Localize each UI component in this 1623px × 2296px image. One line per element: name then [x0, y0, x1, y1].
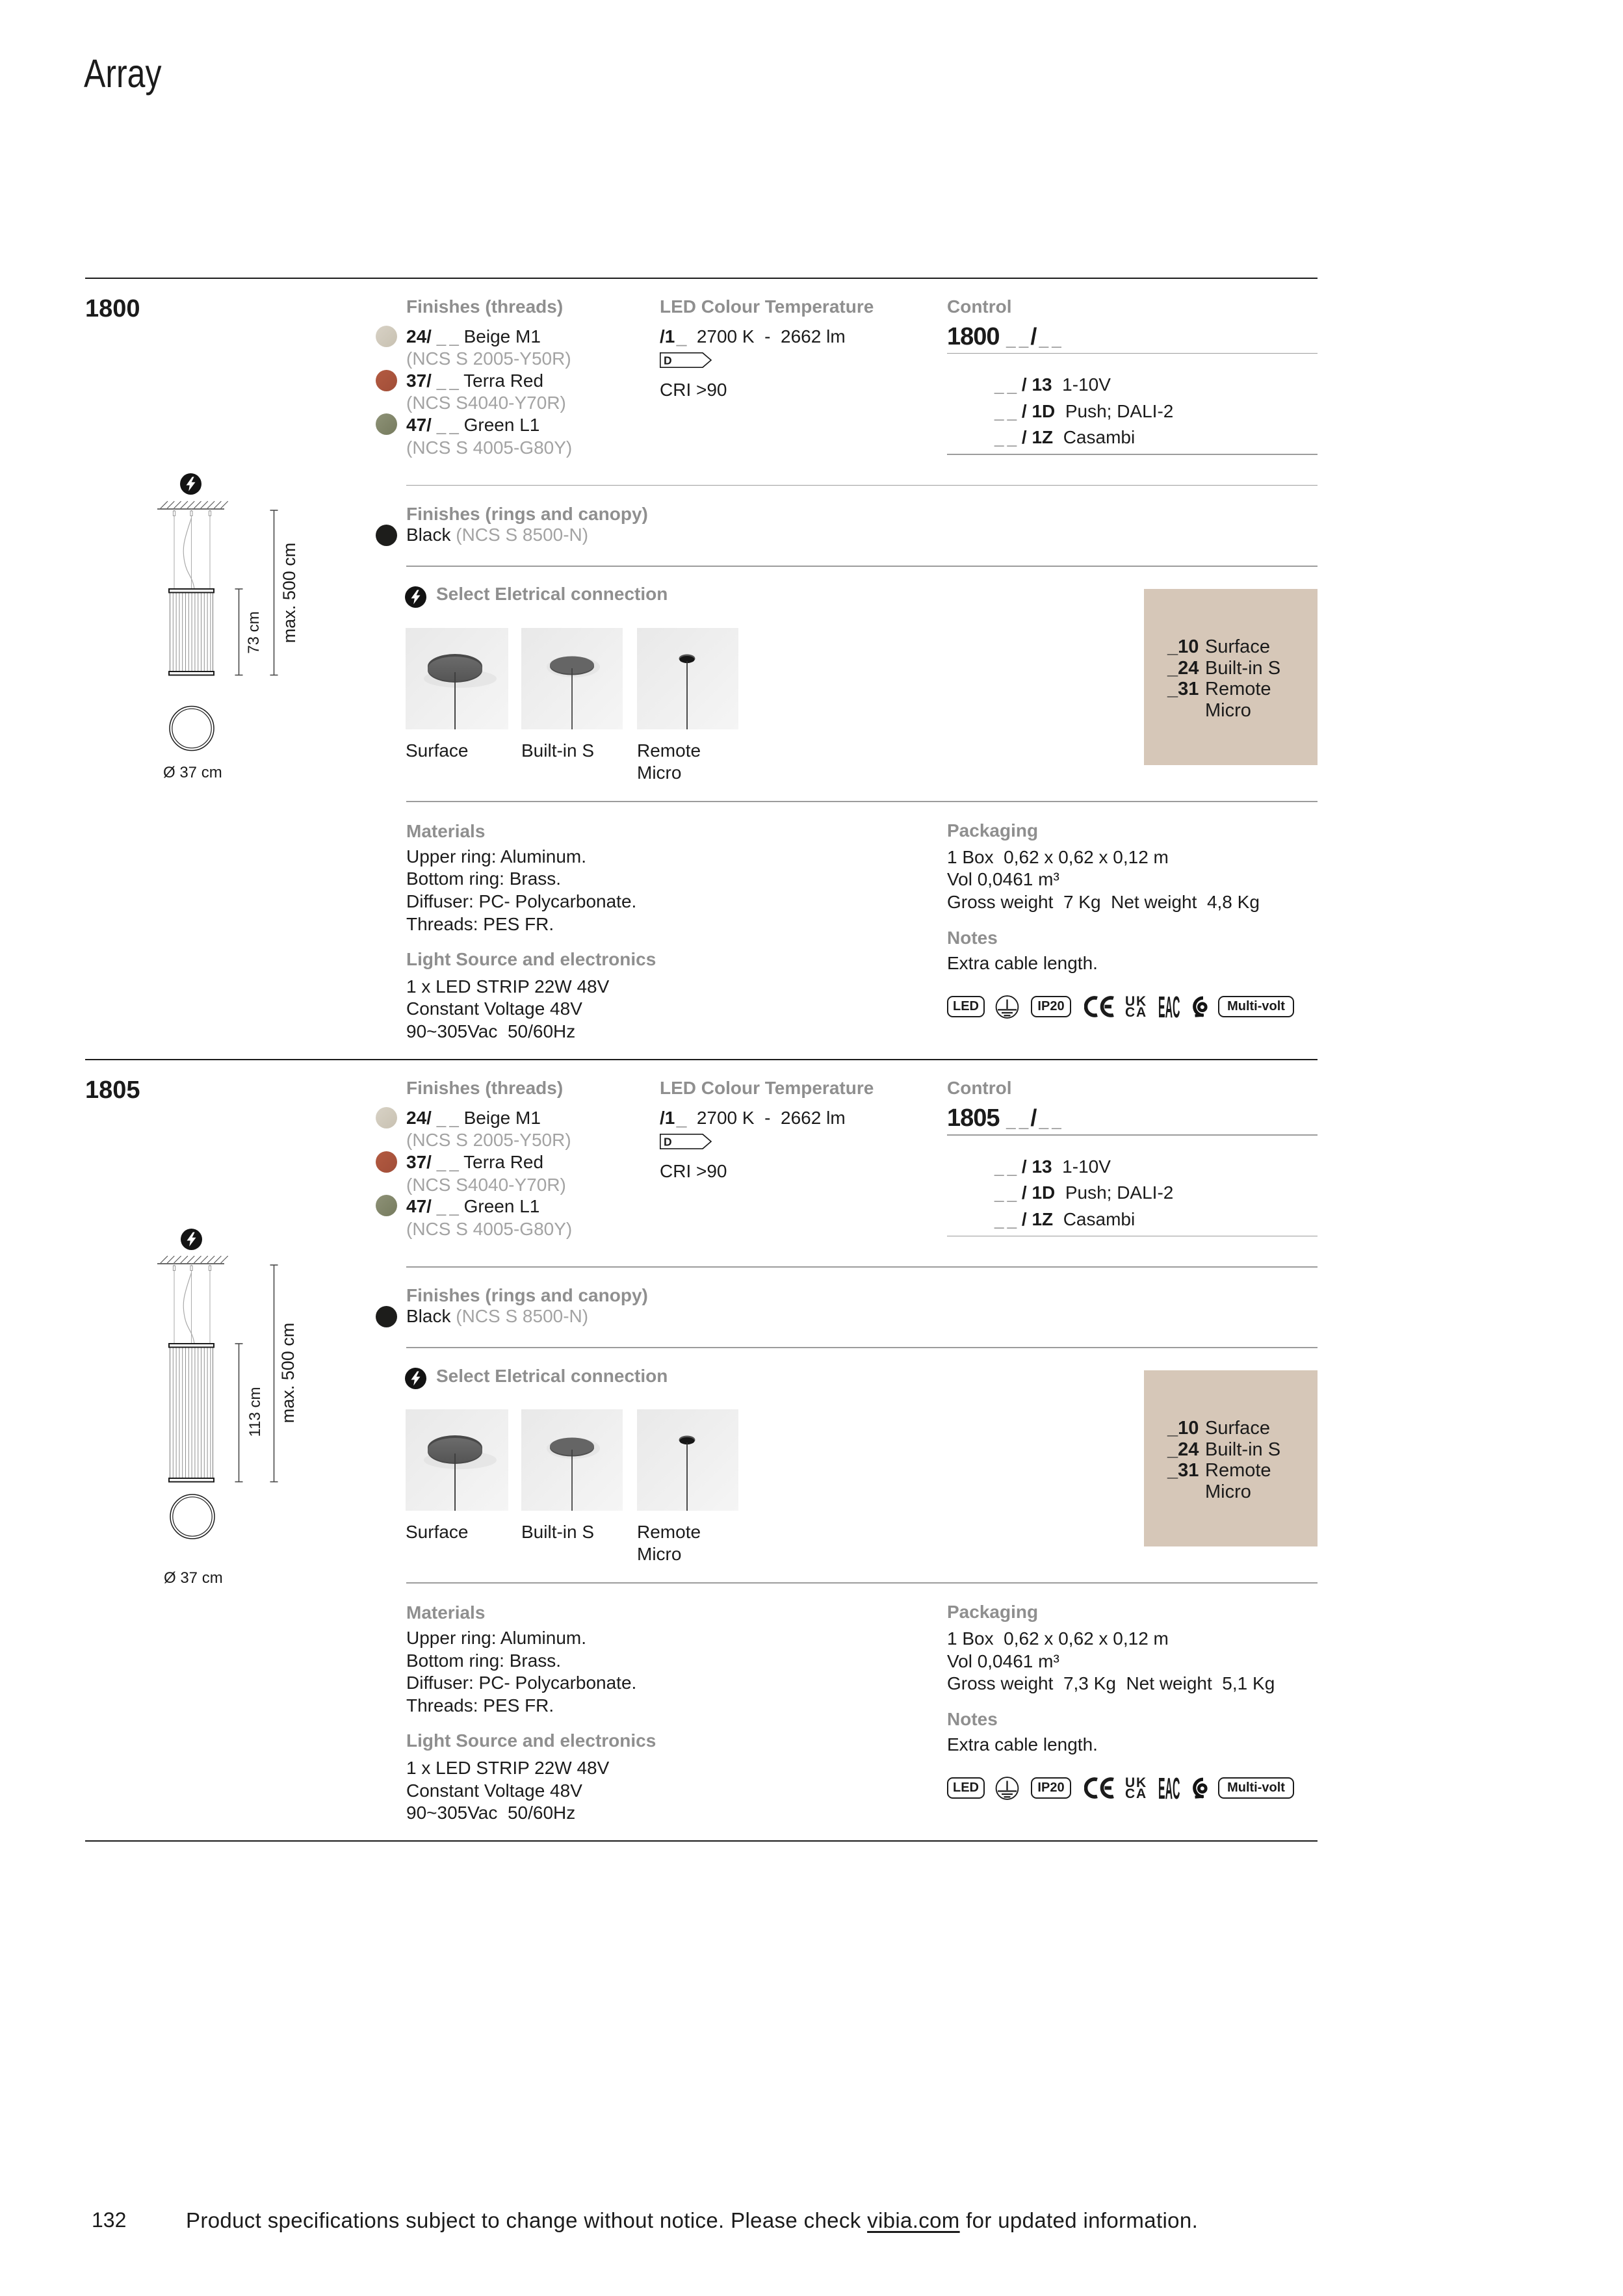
- svg-text:D: D: [664, 1136, 672, 1149]
- svg-text:D: D: [664, 354, 672, 367]
